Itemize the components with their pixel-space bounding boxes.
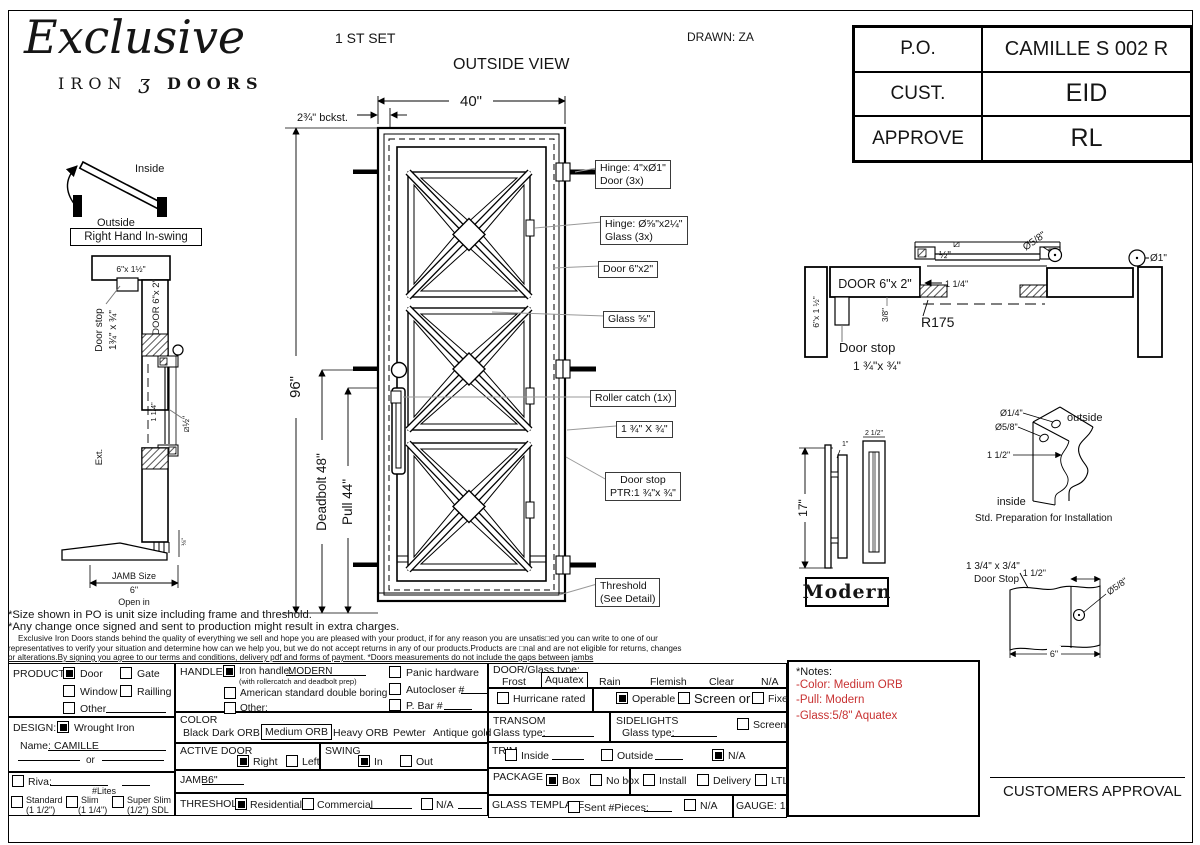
swing-caption: Right Hand In-swing bbox=[70, 228, 202, 246]
slim-sub: (1 1/4") bbox=[78, 805, 107, 815]
standard-sub: (1 1/2") bbox=[26, 805, 55, 815]
design-or-line-left bbox=[18, 752, 80, 761]
trim-outside-field[interactable] bbox=[655, 750, 683, 760]
iron-handle-field[interactable] bbox=[286, 666, 366, 676]
callout-door-stop: Door stop PTR:1 ¾"x ¾" bbox=[605, 472, 681, 501]
glass-aquatex-selected[interactable]: Aquatex bbox=[541, 672, 588, 688]
handle-style-text: Modern bbox=[803, 581, 892, 603]
checkbox-delivery[interactable] bbox=[697, 774, 709, 786]
deadbolt-symbol bbox=[392, 363, 407, 378]
logo-title: Exclusive bbox=[24, 10, 245, 64]
disclaimer-line4: representatives to verify your situation… bbox=[8, 644, 682, 653]
checkbox-trim-na[interactable] bbox=[712, 749, 724, 761]
american-boring-label: American standard double boring bbox=[240, 688, 387, 699]
super-slim-label: Super Slim bbox=[127, 795, 171, 805]
checkbox-autocloser[interactable] bbox=[389, 683, 401, 695]
height-dim: 96" bbox=[287, 376, 304, 398]
callout-roller-catch: Roller catch (1x) bbox=[590, 390, 676, 407]
standard-label: Standard bbox=[26, 795, 63, 805]
glass-frost[interactable]: Frost bbox=[502, 676, 526, 688]
stopdetail-dia-58: Ø5/8" bbox=[1105, 576, 1129, 597]
handle-dim-25: 2 1/2" bbox=[865, 430, 884, 437]
product-other-field[interactable] bbox=[106, 703, 166, 713]
section-jamb-dim: 6"x 1½" bbox=[116, 264, 145, 274]
iron-handle-sub: (with rollercatch and deadbolt prep) bbox=[239, 677, 357, 686]
stopdetail-label-2: Door Stop bbox=[974, 574, 1019, 585]
prep-dim-112: 1 1/2" bbox=[987, 450, 1010, 460]
nobox-label: No box bbox=[606, 775, 639, 787]
glass-clear[interactable]: Clear bbox=[709, 676, 734, 688]
std-prep-drawing: Ø1/4" Ø5/8" 1 1/2" outside inside Std. P… bbox=[973, 393, 1195, 528]
checkbox-active-left[interactable] bbox=[286, 755, 298, 767]
pbar-label: P. Bar # bbox=[406, 700, 443, 712]
jamb-open-label: Open in bbox=[118, 597, 150, 607]
checkbox-install[interactable] bbox=[643, 774, 655, 786]
swing-out-label: Out bbox=[416, 756, 433, 768]
callout-door-stop-l1: Door stop bbox=[610, 474, 676, 487]
svg-text:⅛": ⅛" bbox=[181, 537, 188, 545]
color-heavy-orb[interactable]: Heavy ORB bbox=[333, 727, 388, 739]
product-window-label: Window bbox=[80, 686, 117, 698]
drawn-label: DRAWN: ZA bbox=[687, 30, 754, 44]
head-dim-38: 3/8" bbox=[881, 308, 890, 322]
callout-glass: Glass ⅝" bbox=[603, 311, 655, 328]
checkbox-panic-hardware[interactable] bbox=[389, 666, 401, 678]
stopdetail-dim-6: 6" bbox=[1050, 649, 1058, 659]
product-railling-label: Railling bbox=[137, 686, 171, 698]
handle-label: HANDLE bbox=[180, 666, 223, 678]
set-label: 1 ST SET bbox=[335, 30, 395, 46]
door-stop-detail-drawing: 1 3/4" x 3/4" Door Stop 1 1/2" Ø5/8" 6" bbox=[958, 553, 1193, 668]
roller-catch-symbol bbox=[391, 391, 401, 403]
checkbox-residential[interactable] bbox=[235, 798, 247, 810]
glass-na[interactable]: N/A bbox=[761, 676, 779, 688]
head-door-dim: DOOR 6"x 2" bbox=[838, 277, 911, 291]
delivery-label: Delivery bbox=[713, 775, 751, 787]
door-panel-2 bbox=[408, 308, 530, 430]
head-stop-dim: 1 ¾"x ¾" bbox=[853, 359, 901, 373]
notes-glass: -Glass:5/8" Aquatex bbox=[796, 710, 897, 722]
checkbox-product-gate[interactable] bbox=[120, 667, 132, 679]
section-ext-label: Ext. bbox=[94, 449, 105, 465]
design-name-field[interactable] bbox=[48, 741, 166, 751]
checkbox-trim-outside[interactable] bbox=[601, 749, 613, 761]
section-doorstop-dim: 1¾" x ¾" bbox=[108, 310, 119, 350]
checkbox-iron-handle[interactable] bbox=[223, 665, 235, 677]
handle-dim-17: 17" bbox=[796, 499, 810, 517]
checkbox-swing-in[interactable] bbox=[358, 755, 370, 767]
notes-pull: -Pull: Modern bbox=[796, 694, 864, 706]
section-glass-dim: ⧄½" bbox=[181, 416, 191, 432]
checkbox-sent-pieces[interactable] bbox=[568, 801, 580, 813]
design-or-line-right bbox=[102, 752, 164, 761]
disclaimer-line1: *Size shown in PO is unit size including… bbox=[8, 609, 312, 621]
checkbox-swing-out[interactable] bbox=[400, 755, 412, 767]
color-medium-orb-selected[interactable]: Medium ORB bbox=[261, 724, 332, 740]
riva-label: Riva: bbox=[28, 776, 52, 788]
head-section-drawing: 6"x 1 ½" DOOR 6"x 2" Door stop 1 ¾"x ¾" … bbox=[795, 230, 1200, 415]
iron-handle-label: Iron handle: bbox=[239, 666, 292, 677]
install-label: Install bbox=[659, 775, 686, 787]
checkbox-product-other[interactable] bbox=[63, 702, 75, 714]
head-stop-label: Door stop bbox=[839, 340, 895, 355]
checkbox-template-na[interactable] bbox=[684, 799, 696, 811]
info-label-po: P.O. bbox=[854, 27, 982, 72]
callout-hinge-glass: Hinge: Ø⅝"x2¼" Glass (3x) bbox=[600, 216, 688, 245]
product-label: PRODUCT: bbox=[13, 668, 67, 680]
jamb-size-value: 6" bbox=[130, 585, 138, 595]
trim-inside-label: Inside bbox=[521, 750, 549, 762]
riva-field[interactable] bbox=[50, 776, 108, 786]
prep-dia-58: Ø5/8" bbox=[995, 422, 1018, 432]
stopdetail-label-1: 1 3/4" x 3/4" bbox=[966, 561, 1020, 572]
color-black[interactable]: Black bbox=[183, 727, 209, 739]
head-square-symbol: ⧄ bbox=[953, 238, 960, 250]
pbar-field[interactable] bbox=[444, 700, 472, 710]
color-dark-orb[interactable]: Dark ORB bbox=[212, 727, 260, 739]
checkbox-pbar[interactable] bbox=[389, 699, 401, 711]
hurricane-label: Hurricane rated bbox=[513, 693, 585, 705]
prep-caption: Std. Preparation for Installation bbox=[975, 513, 1112, 524]
checkbox-trim-inside[interactable] bbox=[505, 749, 517, 761]
door-panel-3 bbox=[408, 443, 530, 570]
callout-hinge-door-l1: Hinge: 4"xØ1" bbox=[600, 162, 666, 175]
logo-iron: IRON bbox=[58, 74, 127, 93]
head-radius: R175 bbox=[921, 314, 955, 330]
sidelights-screen-label: Screen bbox=[753, 719, 786, 731]
section-door-dim: DOOR 6"x 2" bbox=[151, 279, 162, 335]
pull-dim: Pull 44" bbox=[340, 479, 355, 525]
design-label: DESIGN: bbox=[13, 722, 56, 734]
gauge-label: GAUGE: 14 bbox=[736, 800, 791, 812]
callout-threshold-l2: (See Detail) bbox=[600, 593, 655, 606]
design-or-label: or bbox=[86, 755, 95, 766]
checkbox-active-right[interactable] bbox=[237, 755, 249, 767]
sidelights-glass-field[interactable] bbox=[671, 727, 717, 737]
section-gap-dim: 1 1/4" bbox=[149, 402, 158, 422]
logo-subtitle: IRON ʒ DOORS bbox=[58, 70, 264, 94]
checkbox-product-railling[interactable] bbox=[120, 685, 132, 697]
jamb-size-label: JAMB Size bbox=[112, 571, 156, 581]
checkbox-product-door[interactable] bbox=[63, 667, 75, 679]
callout-hinge-door: Hinge: 4"xØ1" Door (3x) bbox=[595, 160, 671, 189]
checkbox-product-window[interactable] bbox=[63, 685, 75, 697]
checkbox-operable[interactable] bbox=[616, 692, 628, 704]
prep-outside-label: outside bbox=[1067, 412, 1102, 424]
checkbox-slim[interactable] bbox=[66, 796, 78, 808]
slim-label: Slim bbox=[81, 795, 99, 805]
sent-pieces-field[interactable] bbox=[644, 802, 672, 812]
active-left-label: Left bbox=[302, 756, 320, 768]
jamb-field[interactable] bbox=[202, 775, 244, 785]
prep-dia-14: Ø1/4" bbox=[1000, 408, 1023, 418]
trim-na-label: N/A bbox=[728, 750, 746, 762]
view-label: OUTSIDE VIEW bbox=[453, 56, 569, 74]
stopdetail-dim-112: 1 1/2" bbox=[1023, 568, 1046, 578]
autocloser-label: Autocloser # bbox=[406, 684, 464, 696]
color-pewter[interactable]: Pewter bbox=[393, 727, 426, 739]
head-dim-114: 1 1/4" bbox=[945, 279, 968, 289]
trim-outside-label: Outside bbox=[617, 750, 653, 762]
product-other-label: Other bbox=[80, 703, 106, 715]
info-value-po: CAMILLE S 002 R bbox=[982, 27, 1191, 72]
riva-field-2[interactable] bbox=[122, 776, 150, 786]
handle-detail-drawing: 17" 1" 2 1/2" bbox=[793, 428, 908, 588]
info-table: P.O. CAMILLE S 002 R CUST. EID APPROVE R… bbox=[852, 25, 1193, 163]
logo-ornament-icon: ʒ bbox=[139, 70, 156, 94]
width-dim: 40" bbox=[460, 93, 482, 110]
operable-label: Operable bbox=[632, 693, 675, 705]
ltl-label: LTL bbox=[771, 775, 788, 787]
template-na-label: N/A bbox=[700, 800, 718, 812]
head-dia-1: Ø1" bbox=[1150, 253, 1167, 264]
swing-in-label: In bbox=[374, 756, 383, 768]
box-label: Box bbox=[562, 775, 580, 787]
design-name-label: Name: bbox=[20, 740, 51, 752]
glass-flemish[interactable]: Flemish bbox=[650, 676, 687, 688]
info-value-cust: EID bbox=[982, 72, 1191, 117]
sidelights-label: SIDELIGHTS bbox=[616, 715, 678, 727]
transom-label: TRANSOM bbox=[493, 715, 546, 727]
checkbox-hurricane[interactable] bbox=[497, 692, 509, 704]
autocloser-field[interactable] bbox=[461, 684, 487, 694]
checkbox-standard[interactable] bbox=[11, 796, 23, 808]
door-elevation-drawing: 40" 2¾" bckst. 96" Deadbolt 48" Pull 44" bbox=[245, 88, 795, 620]
deadbolt-dim: Deadbolt 48" bbox=[314, 453, 329, 531]
section-doorstop-label: Door stop bbox=[94, 308, 105, 352]
checkbox-ltl[interactable] bbox=[755, 774, 767, 786]
door-panel-1 bbox=[408, 172, 530, 297]
handle-dim-1: 1" bbox=[842, 441, 849, 448]
callout-door: Door 6"x2" bbox=[598, 261, 658, 278]
head-jamb-dim: 6"x 1 ½" bbox=[811, 296, 821, 328]
transom-glass-label: Glass type: bbox=[493, 727, 546, 739]
prep-inside-label: inside bbox=[997, 496, 1026, 508]
handle-other-label: Other: bbox=[240, 703, 268, 714]
checkbox-commercial[interactable] bbox=[302, 798, 314, 810]
callout-threshold-l1: Threshold bbox=[600, 580, 655, 593]
head-half-dim: ½" bbox=[939, 250, 951, 261]
checkbox-design-wrought-iron[interactable] bbox=[57, 721, 69, 733]
checkbox-riva[interactable] bbox=[12, 775, 24, 787]
checkbox-screen[interactable] bbox=[678, 692, 690, 704]
approval-label: CUSTOMERS APPROVAL bbox=[1003, 783, 1182, 800]
notes-color: -Color: Medium ORB bbox=[796, 679, 903, 691]
checkbox-fixed[interactable] bbox=[752, 692, 764, 704]
info-label-cust: CUST. bbox=[854, 72, 982, 117]
swing-label: SWING bbox=[325, 745, 361, 757]
commercial-field[interactable] bbox=[370, 799, 412, 809]
callout-stop-dim: 1 ¾" X ¾" bbox=[616, 421, 673, 438]
design-wrought-label: Wrought Iron bbox=[74, 722, 135, 734]
product-gate-label: Gate bbox=[137, 668, 160, 680]
checkbox-threshold-na[interactable] bbox=[421, 798, 433, 810]
callout-door-stop-l2: PTR:1 ¾"x ¾" bbox=[610, 487, 676, 500]
checkbox-sidelights-screen[interactable] bbox=[737, 718, 749, 730]
handle-other-field[interactable] bbox=[270, 702, 358, 712]
panic-hardware-label: Panic hardware bbox=[406, 667, 479, 679]
product-door-label: Door bbox=[80, 668, 103, 680]
backset-dim: 2¾" bckst. bbox=[297, 112, 348, 124]
left-section-drawing: 6"x 1½" Door stop 1¾" x ¾" DOOR 6"x 2" 1… bbox=[58, 252, 245, 612]
screen-or-label: Screen or bbox=[694, 691, 750, 706]
glass-rain[interactable]: Rain bbox=[599, 676, 621, 688]
checkbox-box[interactable] bbox=[546, 774, 558, 786]
info-value-approve: RL bbox=[982, 116, 1191, 161]
sent-pieces-label: Sent #Pieces: bbox=[584, 802, 649, 814]
threshold-na-label: N/A bbox=[436, 799, 454, 811]
residential-label: Residential bbox=[250, 799, 302, 811]
drawing-sheet: Exclusive IRON ʒ DOORS 1 ST SET OUTSIDE … bbox=[0, 0, 1200, 845]
checkbox-handle-other[interactable] bbox=[224, 702, 236, 714]
disclaimer-line3: Exclusive Iron Doors stands behind the q… bbox=[18, 634, 658, 643]
color-label: COLOR bbox=[180, 714, 217, 726]
approval-signature-line[interactable] bbox=[990, 777, 1185, 778]
checkbox-nobox[interactable] bbox=[590, 774, 602, 786]
sidelights-glass-label: Glass type: bbox=[622, 727, 675, 739]
info-label-approve: APPROVE bbox=[854, 116, 982, 161]
transom-glass-field[interactable] bbox=[542, 727, 594, 737]
commercial-label: Commercial bbox=[317, 799, 373, 811]
checkbox-super-slim[interactable] bbox=[112, 796, 124, 808]
swing-inside-label: Inside bbox=[135, 163, 164, 175]
callout-hinge-glass-l2: Glass (3x) bbox=[605, 231, 683, 244]
threshold-na-field[interactable] bbox=[458, 799, 482, 809]
checkbox-american-boring[interactable] bbox=[224, 687, 236, 699]
callout-hinge-door-l2: Door (3x) bbox=[600, 175, 666, 188]
callout-hinge-glass-l1: Hinge: Ø⅝"x2¼" bbox=[605, 218, 683, 231]
swing-caption-text: Right Hand In-swing bbox=[84, 231, 188, 243]
callout-threshold: Threshold (See Detail) bbox=[595, 578, 660, 607]
super-slim-sub: (1/2") SDL bbox=[127, 805, 169, 815]
package-label: PACKAGE bbox=[493, 771, 543, 783]
trim-inside-field[interactable] bbox=[552, 750, 584, 760]
color-antique-gold[interactable]: Antique gold bbox=[433, 727, 491, 739]
active-right-label: Right bbox=[253, 756, 278, 768]
disclaimer-line2: *Any change once signed and sent to prod… bbox=[8, 621, 399, 633]
disclaimer-line5: or alterations.By signing you agree to o… bbox=[8, 653, 593, 662]
notes-title: *Notes: bbox=[796, 666, 832, 678]
handle-style-caption: Modern bbox=[805, 577, 889, 607]
